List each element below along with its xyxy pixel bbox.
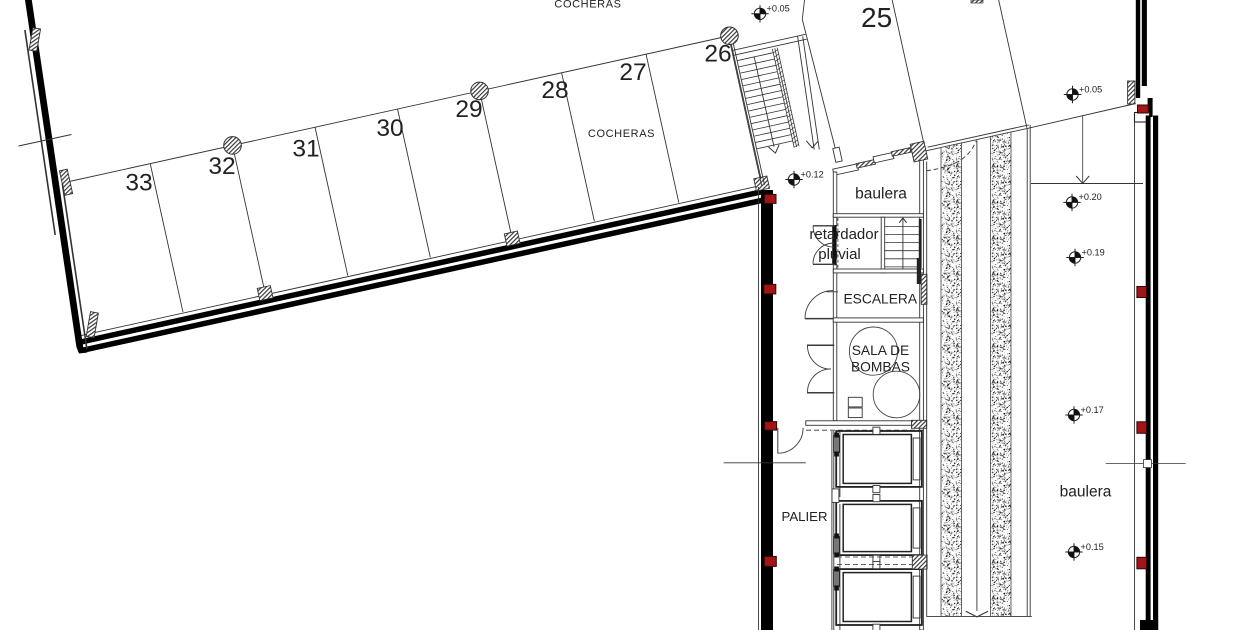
svg-text:32: 32: [208, 153, 235, 180]
svg-text:30: 30: [376, 115, 403, 142]
svg-text:+0.05: +0.05: [767, 4, 790, 14]
svg-text:BOMBAS: BOMBAS: [851, 359, 910, 374]
svg-text:SALA DE: SALA DE: [852, 343, 910, 358]
svg-text:+0.20: +0.20: [1079, 192, 1102, 202]
svg-text:29: 29: [455, 96, 482, 123]
svg-text:COCHERAS: COCHERAS: [554, 0, 621, 11]
svg-text:26: 26: [704, 41, 731, 68]
svg-text:ESCALERA: ESCALERA: [843, 292, 917, 307]
svg-text:27: 27: [619, 59, 646, 86]
svg-text:+0.05: +0.05: [1079, 84, 1102, 94]
svg-text:baulera: baulera: [855, 186, 907, 203]
svg-text:28: 28: [541, 77, 568, 104]
svg-text:pluvial: pluvial: [818, 246, 861, 263]
svg-text:+0.15: +0.15: [1081, 542, 1104, 552]
svg-text:+0.12: +0.12: [801, 169, 824, 179]
svg-text:baulera: baulera: [1060, 484, 1112, 501]
svg-text:25: 25: [861, 2, 892, 33]
svg-text:31: 31: [292, 136, 319, 163]
svg-text:retardador: retardador: [809, 226, 878, 243]
svg-text:COCHERAS: COCHERAS: [588, 128, 655, 140]
svg-text:+0.19: +0.19: [1082, 247, 1105, 257]
svg-text:+0.17: +0.17: [1081, 405, 1104, 415]
svg-text:PALIER: PALIER: [782, 509, 828, 524]
svg-text:33: 33: [125, 170, 152, 197]
